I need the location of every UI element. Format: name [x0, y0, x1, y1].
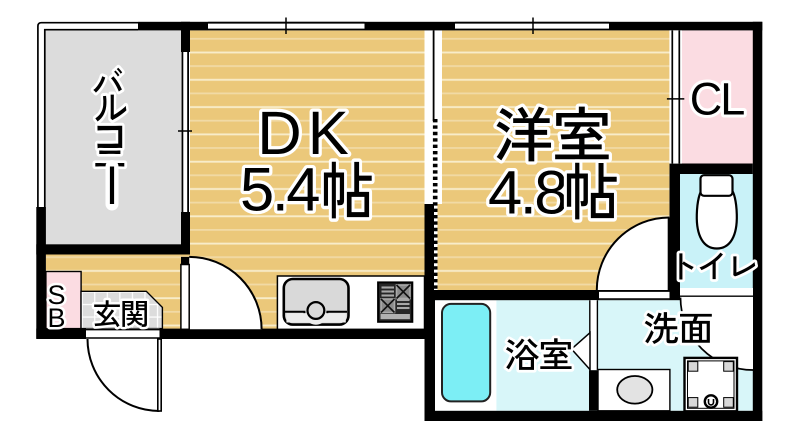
svg-text:CL: CL [690, 74, 744, 125]
svg-text:4.8: 4.8 [488, 159, 566, 228]
svg-text:5.4: 5.4 [240, 156, 319, 225]
svg-text:B: B [47, 303, 65, 333]
